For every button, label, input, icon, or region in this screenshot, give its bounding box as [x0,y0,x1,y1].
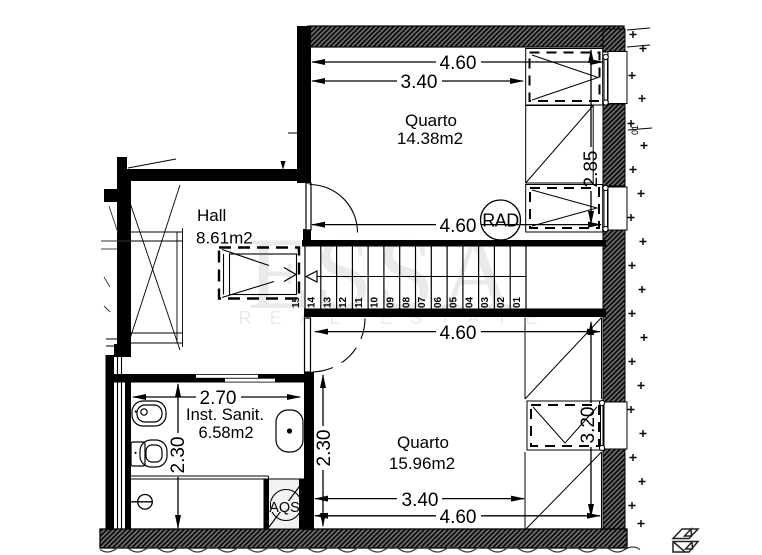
svg-text:2.30: 2.30 [314,430,335,467]
svg-text:14.38m2: 14.38m2 [397,129,463,148]
svg-text:15.96m2: 15.96m2 [389,454,455,473]
svg-text:11: 11 [354,297,365,308]
svg-text:2.70: 2.70 [200,388,237,409]
svg-text:01: 01 [630,125,640,135]
svg-text:Quarto: Quarto [405,111,457,130]
svg-text:07: 07 [417,296,428,308]
svg-text:09: 09 [386,296,397,308]
svg-text:4.60: 4.60 [440,507,477,528]
svg-text:Quarto: Quarto [397,433,449,452]
svg-text:06: 06 [433,296,444,308]
svg-text:RAD: RAD [482,211,519,231]
svg-text:2.30: 2.30 [168,437,189,474]
svg-text:4.60: 4.60 [440,216,477,237]
svg-text:4.60: 4.60 [440,53,477,74]
svg-text:4.60: 4.60 [440,323,477,344]
svg-text:05: 05 [449,296,460,308]
svg-text:Hall: Hall [197,206,226,225]
svg-text:3.40: 3.40 [402,490,439,511]
svg-text:12: 12 [338,296,349,308]
svg-text:3.40: 3.40 [401,72,438,93]
svg-text:14: 14 [307,296,318,308]
svg-text:2.85: 2.85 [581,151,602,188]
svg-text:13: 13 [322,296,333,308]
svg-text:10: 10 [370,296,381,308]
svg-text:01: 01 [512,296,523,308]
svg-text:6.58m2: 6.58m2 [198,424,253,442]
svg-text:03: 03 [480,296,491,308]
svg-text:04: 04 [464,296,475,308]
svg-text:02: 02 [496,296,507,308]
svg-text:08: 08 [401,296,412,308]
svg-text:8.61m2: 8.61m2 [196,229,253,248]
svg-text:AQS: AQS [269,500,300,516]
